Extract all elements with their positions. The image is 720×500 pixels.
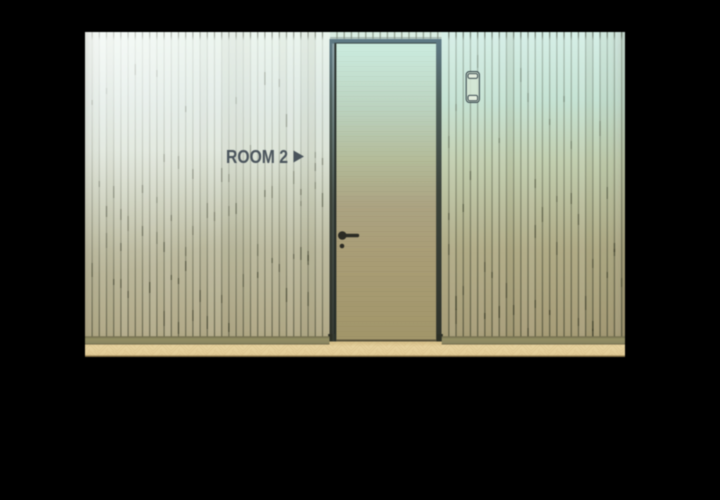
svg-text:ROOM 2: ROOM 2: [226, 147, 288, 167]
